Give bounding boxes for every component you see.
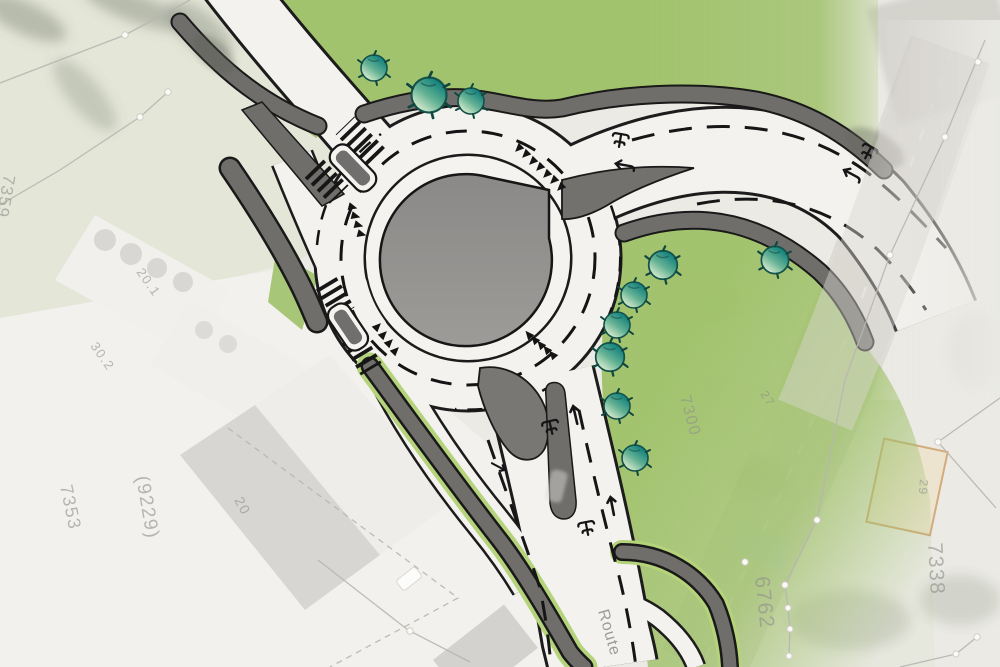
parcel-label-7338: 7338 xyxy=(923,542,949,596)
parcel-vertex-dot xyxy=(407,628,413,634)
central-island xyxy=(380,174,552,346)
parcel-vertex-dot xyxy=(742,559,748,565)
parcel-vertex-dot xyxy=(137,114,143,120)
parcel-vertex-dot xyxy=(935,439,941,445)
parcel-vertex-dot xyxy=(165,89,171,95)
parcel-label-29: 29 xyxy=(916,479,931,497)
parcel-vertex-dot xyxy=(814,517,820,523)
parcel-vertex-dot xyxy=(887,252,893,258)
parcel-vertex-dot xyxy=(975,59,981,65)
parcel-vertex-dot xyxy=(785,605,791,611)
parcel-vertex-dot xyxy=(974,634,980,640)
parcel-vertex-dot xyxy=(953,651,959,657)
parcel-vertex-dot xyxy=(782,582,788,588)
parcel-vertex-dot xyxy=(786,653,792,659)
roundabout-plan-canvas: 7359 7353 (9229) 20 20.1 30.2 7300 27 29… xyxy=(0,0,1000,667)
parcel-vertex-dot xyxy=(942,134,948,140)
site-plan-map: 7359 7353 (9229) 20 20.1 30.2 7300 27 29… xyxy=(0,0,1000,667)
parcel-vertex-dot xyxy=(122,32,128,38)
parcel-vertex-dot xyxy=(787,626,793,632)
